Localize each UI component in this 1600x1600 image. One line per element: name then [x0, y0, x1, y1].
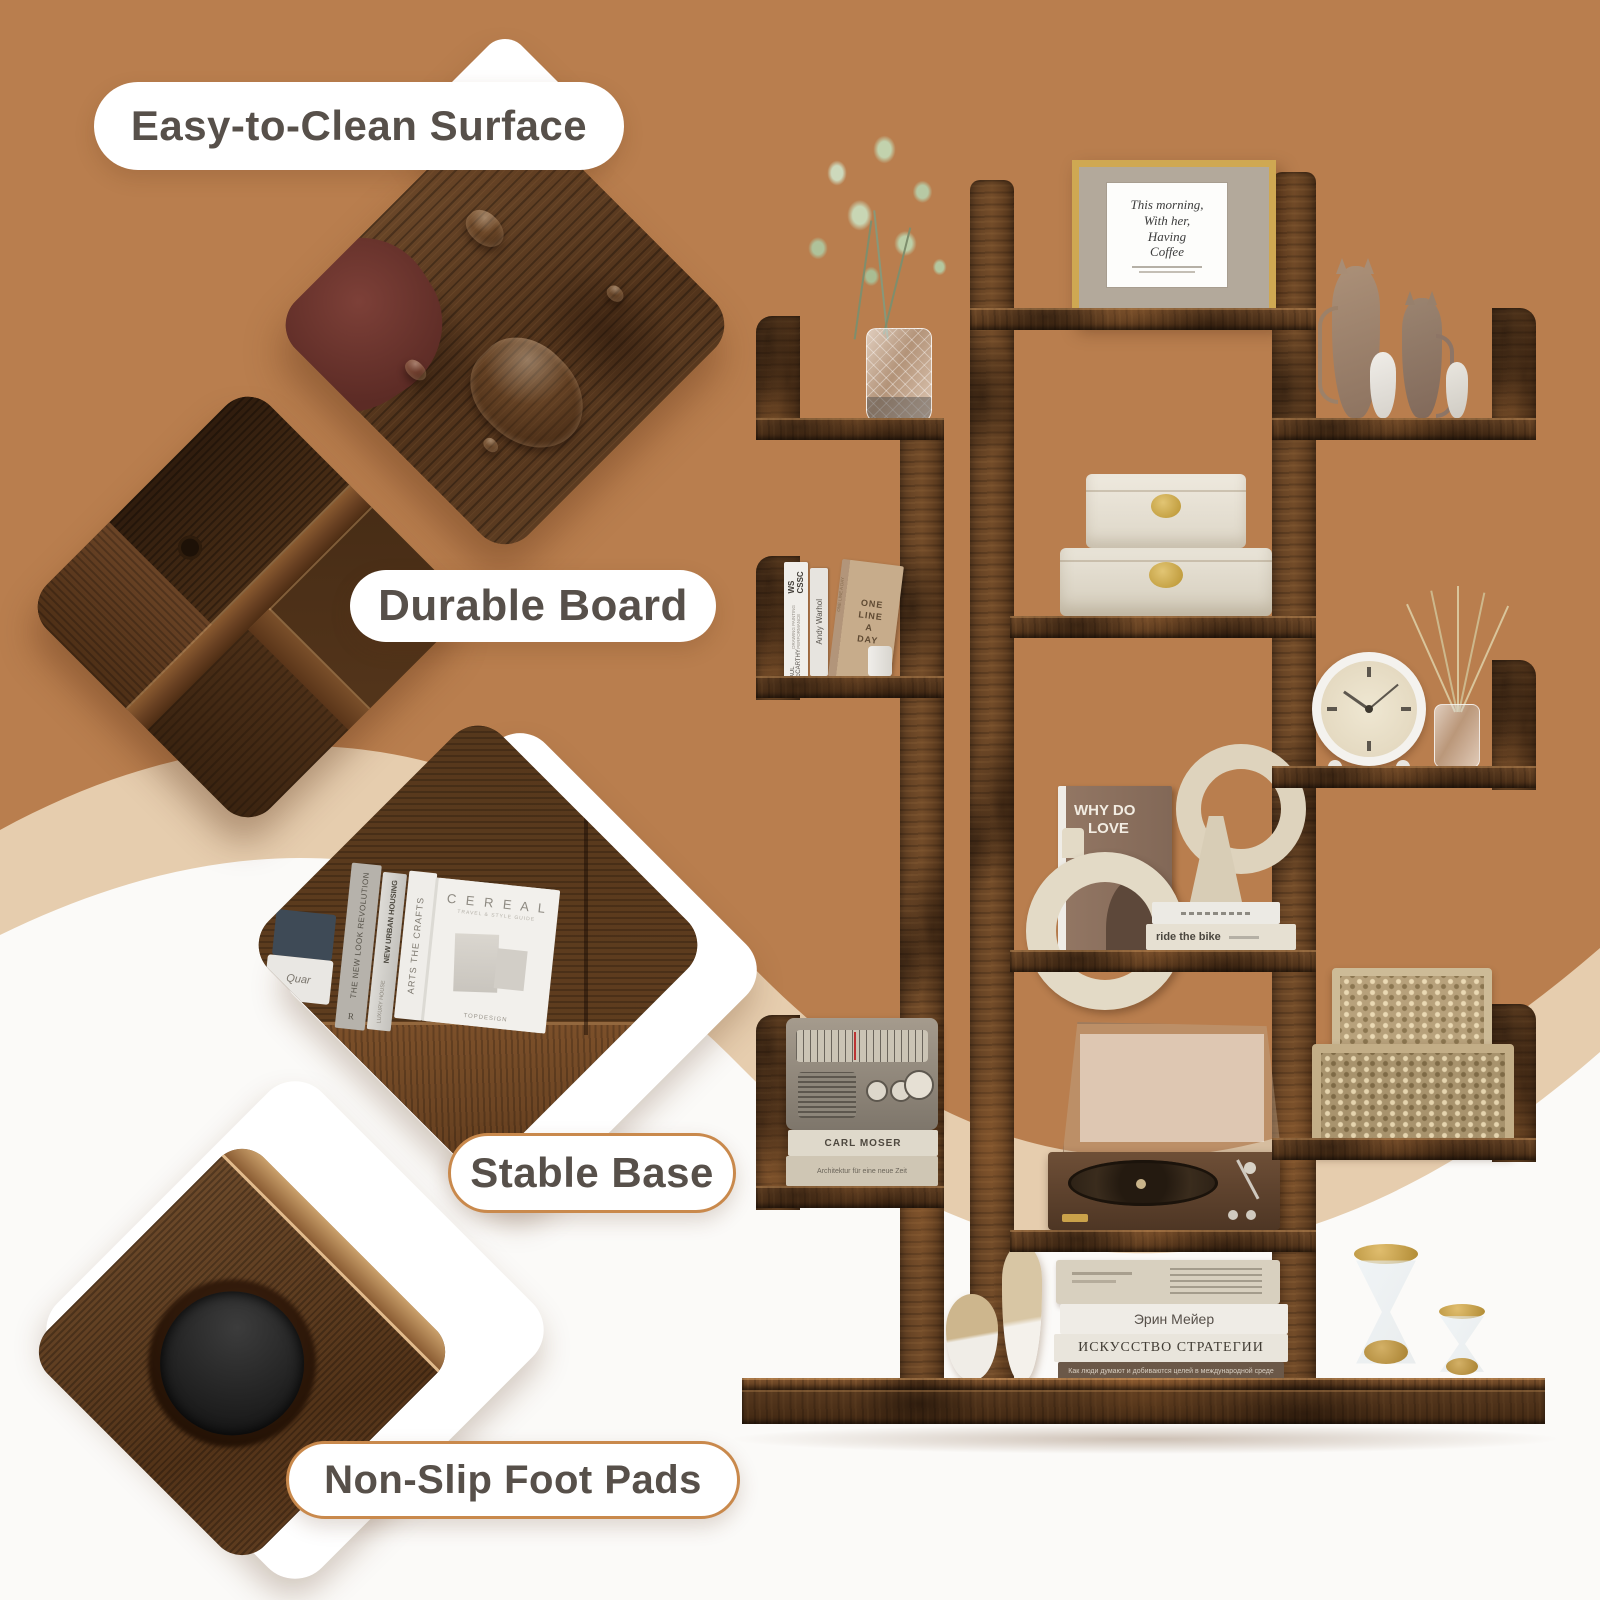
clock-tick-12 [1367, 667, 1371, 677]
tiny-subtext-bar [1229, 936, 1259, 939]
clock-tick-3 [1401, 707, 1411, 711]
spine-initial: R [347, 1011, 354, 1022]
shelf-board-rattan [1272, 1138, 1536, 1160]
radio-needle [854, 1032, 856, 1060]
reed-stick [1457, 586, 1459, 712]
spine-text: ARTS THE CRAFTS [406, 897, 426, 995]
book-architektur: Architektur für eine neue Zeit [786, 1156, 938, 1186]
plant-foliage [780, 126, 970, 361]
keyhole-sculpture-ring [1176, 744, 1306, 874]
print-caption-bar [1132, 266, 1202, 268]
box-lid-line [1060, 560, 1272, 562]
shelf-board-left-books [756, 676, 944, 698]
clock-center-dot [1365, 705, 1373, 713]
spine-text: THE NEW LOOK REVOLUTION [348, 872, 370, 999]
frame-print: This morning, With her, Having Coffee [1107, 183, 1227, 287]
shelf-board-radio [756, 1186, 944, 1208]
box-label: Quar [286, 972, 312, 986]
print-caption-bar [1139, 271, 1195, 273]
cat-figurine-small [1402, 298, 1442, 418]
spine-text: NEW URBAN HOUSING [381, 880, 399, 964]
keepsake-box-large [1060, 548, 1272, 616]
label-stable-base: Stable Base [448, 1133, 736, 1213]
table-clock [1312, 652, 1426, 766]
cover-sketch [453, 933, 499, 993]
shelf-board-vase [756, 418, 944, 440]
book-ride-the-bike: ride the bike [1146, 924, 1296, 950]
shelf-board-frame [970, 308, 1316, 330]
white-mini-vase [1446, 362, 1468, 418]
label-text: Durable Board [378, 581, 688, 631]
picture-frame: This morning, With her, Having Coffee [1072, 160, 1276, 324]
book-carl-moser: CARL MOSER [788, 1130, 938, 1156]
radio-knob [866, 1080, 888, 1102]
print-line: Having [1148, 229, 1186, 245]
cover-line: ONE [860, 598, 884, 611]
book-stack-top [1152, 902, 1280, 924]
label-non-slip-foot-pads: Non-Slip Foot Pads [286, 1441, 740, 1519]
gold-clasp [1149, 562, 1183, 588]
cover-text-bar [1072, 1272, 1132, 1275]
shelf-board-cats [1272, 418, 1536, 440]
spine-text: Как люди думают и добиваются целей в меж… [1068, 1368, 1273, 1375]
label-durable-board: Durable Board [350, 570, 716, 642]
book-spine-ws-cssc: WS CSSC DRAWING PAINTING PERFORMANCE PAU… [784, 562, 808, 688]
turntable-body [1048, 1152, 1280, 1230]
clock-face [1321, 661, 1417, 757]
cover-line: LOVE [1088, 820, 1135, 838]
base-board-top [742, 1378, 1545, 1390]
shelf-board-clock [1272, 766, 1536, 788]
radio-speaker-grille [798, 1072, 856, 1118]
spine-subtext: LUXURY HOUSE [376, 980, 386, 1024]
spine-title: Andy Warhol [815, 599, 824, 645]
book-spine-andy-warhol: Andy Warhol [810, 568, 828, 676]
white-mini-vase [1370, 352, 1396, 418]
spine-text: ИСКУССТВО СТРАТЕГИИ [1078, 1340, 1264, 1356]
control-knob [1228, 1210, 1238, 1220]
cover-brand: TOPDESIGN [424, 1009, 546, 1028]
glass-vase [866, 328, 932, 424]
label-easy-to-clean-surface: Easy-to-Clean Surface [94, 82, 624, 170]
water-drop-small [604, 283, 627, 306]
cover-line: WHY DO [1074, 802, 1135, 820]
hourglass-large [1350, 1244, 1422, 1378]
donut-vase-neck [1062, 828, 1084, 858]
box-lid-line [1086, 490, 1246, 492]
hourglass-small [1436, 1304, 1488, 1378]
spine-text: CARL MOSER [824, 1138, 901, 1149]
shelf-board-turntable [1010, 1230, 1316, 1252]
reed-diffuser-sticks [1424, 588, 1490, 712]
spine-text: ride the bike [1156, 931, 1221, 943]
vintage-radio [786, 1018, 938, 1130]
label-text: Easy-to-Clean Surface [131, 102, 587, 150]
hourglass-sand [1364, 1340, 1408, 1364]
print-line: This morning, [1131, 197, 1204, 213]
floor-shadow [730, 1424, 1560, 1454]
reed-stick [1458, 592, 1485, 712]
cover-line: LINE [858, 609, 884, 622]
cover-line: DAY [857, 633, 879, 646]
print-line: With her, [1144, 213, 1190, 229]
brand-plate [1062, 1214, 1088, 1222]
clock-tick-9 [1327, 707, 1337, 711]
platter-spindle [1136, 1179, 1146, 1189]
label-text: Stable Base [470, 1149, 714, 1197]
print-line: Coffee [1150, 244, 1184, 260]
diffuser-bottle [1434, 704, 1480, 768]
column-left-tall [970, 180, 1014, 1386]
water-drop-large [452, 318, 604, 470]
cover-line: A [865, 622, 874, 633]
gold-clasp [1151, 494, 1181, 518]
book-beige-top [1056, 1260, 1280, 1304]
spine-text: Эрин Мейер [1134, 1311, 1214, 1327]
book-iskusstvo-strategii: ИСКУССТВО СТРАТЕГИИ [1054, 1334, 1288, 1362]
cover-sketch-lines [1170, 1268, 1262, 1294]
radio-dial [796, 1030, 928, 1062]
radio-knob-large [904, 1070, 934, 1100]
keepsake-box-small [1086, 474, 1246, 548]
dark-box [272, 909, 336, 961]
vinyl-platter [1068, 1160, 1218, 1206]
control-knob [1246, 1210, 1256, 1220]
spine-subtitle: DRAWING PAINTING PERFORMANCE [791, 594, 801, 649]
clock-minute-hand [1368, 684, 1398, 710]
column-left-inner [900, 437, 944, 1386]
turntable-lid-open [1062, 1022, 1282, 1160]
cover-sketch-2 [494, 948, 528, 991]
cover-text-bar [1072, 1280, 1116, 1283]
cat-tail [1318, 306, 1338, 404]
spine-text: Architektur für eine neue Zeit [817, 1168, 907, 1175]
shelf-board-boxes [1010, 616, 1316, 638]
lid-inner-sheen [1080, 1034, 1264, 1142]
water-drop-medium [460, 203, 511, 254]
product-feature-infographic: Easy-to-Clean Surface Durable Board Quar… [0, 0, 1600, 1600]
base-board-front [742, 1390, 1545, 1424]
tonearm-base [1244, 1162, 1256, 1174]
book-erin-meyer: Эрин Мейер [1060, 1304, 1288, 1334]
clock-tick-6 [1367, 741, 1371, 751]
felt-foot-pad [130, 1261, 334, 1465]
label-text: Non-Slip Foot Pads [324, 1458, 702, 1503]
tiny-spine-text-bar [1181, 912, 1251, 915]
water-drop-small [481, 435, 501, 455]
small-white-jar [868, 646, 892, 676]
book-cover-cereal: C E R E A L TRAVEL & STYLE GUIDE TOPDESI… [424, 878, 560, 1034]
hourglass-sand [1446, 1358, 1478, 1375]
shelf-board-display [1010, 950, 1316, 972]
spine-title: WS CSSC [787, 568, 805, 594]
reed-stick [1430, 591, 1458, 713]
